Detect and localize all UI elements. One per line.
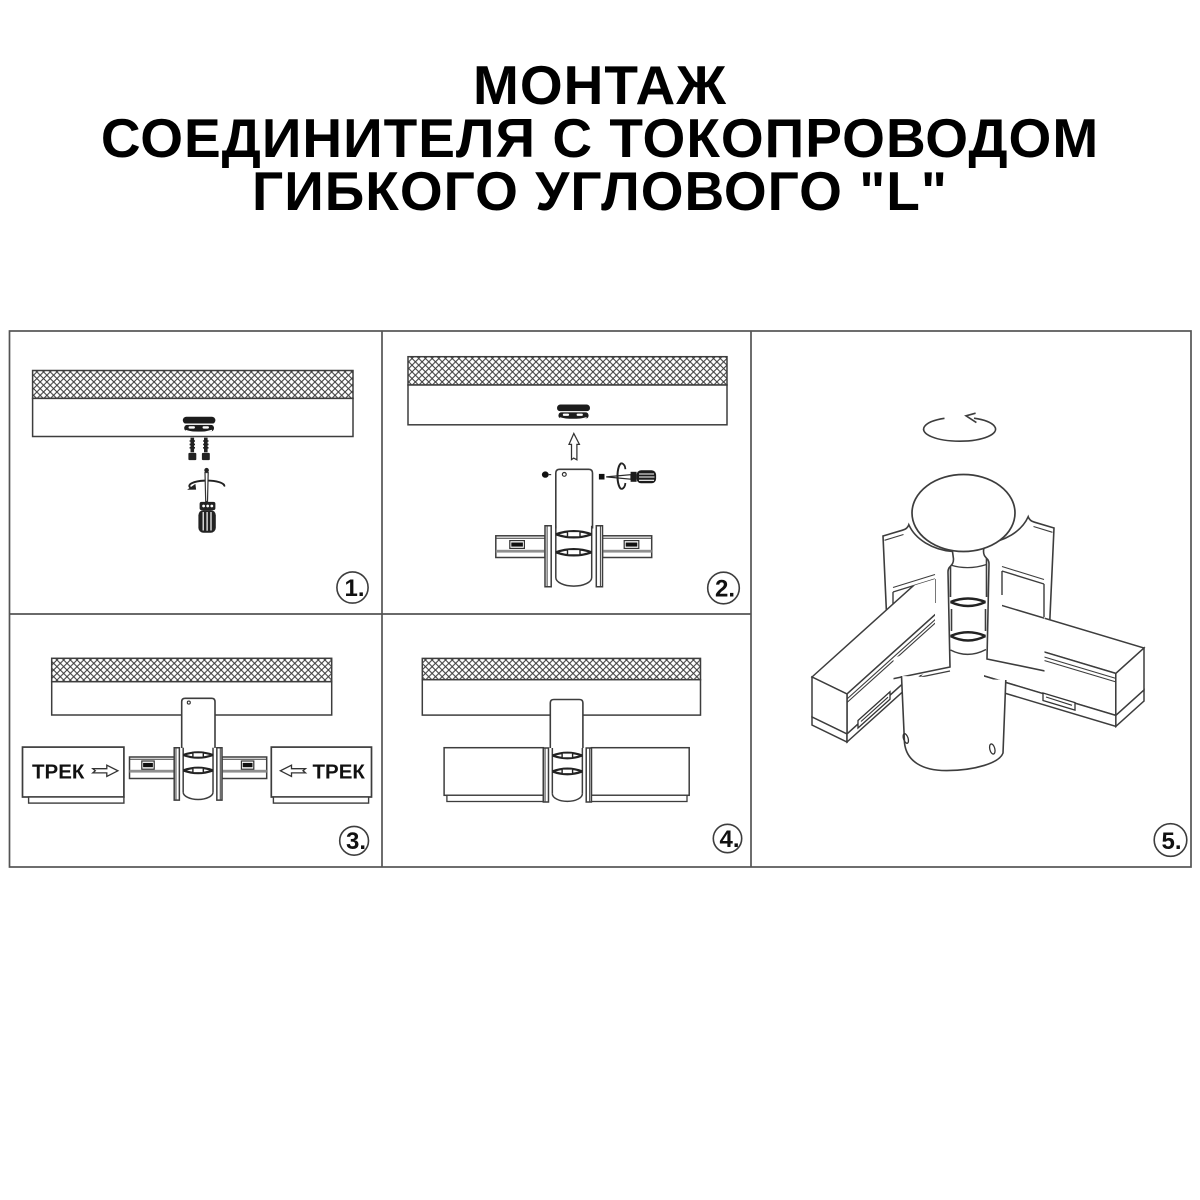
- svg-text:ТРЕК: ТРЕК: [313, 760, 366, 783]
- svg-text:5.: 5.: [1162, 828, 1182, 855]
- svg-text:4.: 4.: [720, 826, 740, 853]
- svg-text:ТРЕК: ТРЕК: [32, 760, 85, 783]
- svg-text:3.: 3.: [346, 828, 366, 855]
- svg-text:1.: 1.: [345, 575, 365, 602]
- svg-text:2.: 2.: [715, 576, 735, 603]
